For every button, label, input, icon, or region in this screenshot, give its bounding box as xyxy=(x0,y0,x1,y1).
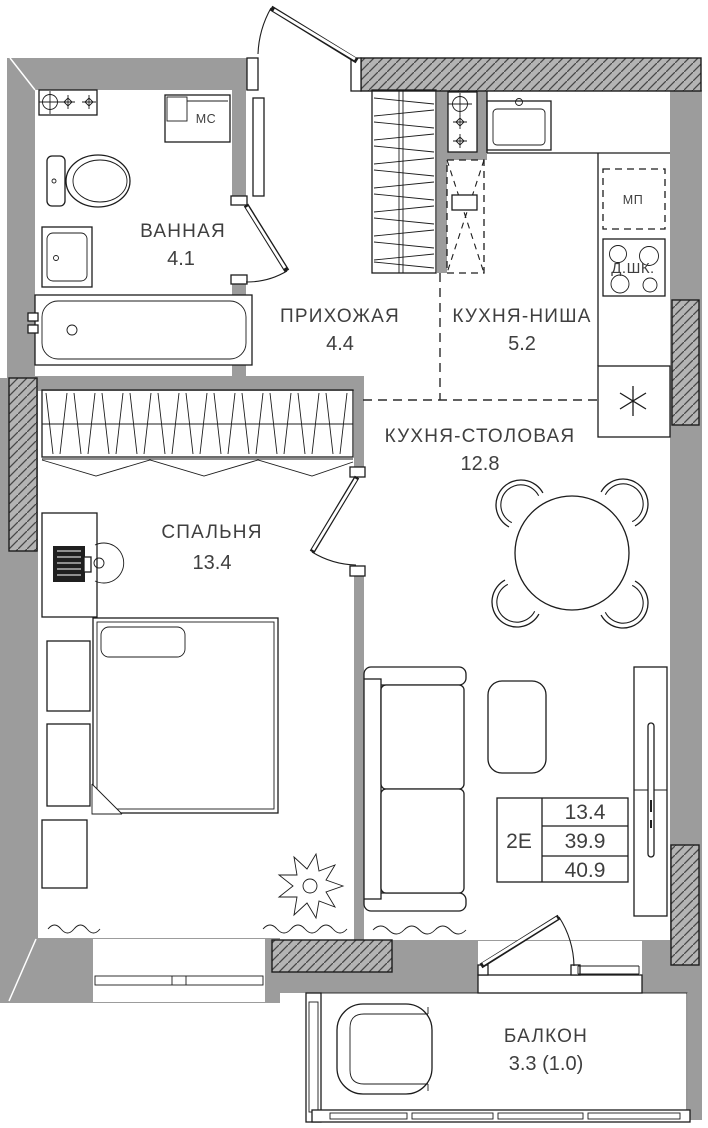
kitchen-niche-label: КУХНЯ-НИША xyxy=(452,306,591,327)
floor-plan: 2Е 13.4 39.9 40.9 ВАННАЯ 4.1 ПРИХОЖАЯ 4 xyxy=(0,0,708,1128)
bedroom-area-value: 13.4 xyxy=(565,801,606,824)
plant xyxy=(279,854,343,918)
wardrobe xyxy=(42,390,353,476)
balcony-area: 3.3 (1.0) xyxy=(509,1053,583,1075)
tv xyxy=(648,723,654,857)
balcony-label: БАЛКОН xyxy=(504,1026,588,1047)
dining-table xyxy=(482,469,659,639)
vent-duct xyxy=(447,160,484,273)
washing-machine-label: МС xyxy=(196,112,216,126)
curtain-squiggle xyxy=(48,925,100,933)
area-without-balcony-value: 39.9 xyxy=(565,830,606,853)
nightstand xyxy=(47,641,90,711)
kitchen-niche-area: 5.2 xyxy=(508,333,536,355)
spec-table: 2Е 13.4 39.9 40.9 xyxy=(497,798,628,882)
balcony xyxy=(306,993,690,1122)
kitchen-dining-label: КУХНЯ-СТОЛОВАЯ xyxy=(385,426,576,447)
balcony-door xyxy=(478,917,642,993)
total-area-value: 40.9 xyxy=(565,859,606,882)
kitchen-riser-icon xyxy=(448,92,477,152)
kitchen-sink xyxy=(487,99,551,151)
desk xyxy=(42,513,97,617)
apartment-type: 2Е xyxy=(506,830,532,853)
curtain-squiggle xyxy=(263,925,347,933)
bedroom-label: СПАЛЬНЯ xyxy=(161,522,262,543)
living-room: 2Е 13.4 39.9 40.9 xyxy=(364,469,667,934)
hall-jamb-panel xyxy=(253,98,264,196)
plumbing-riser-icon xyxy=(39,90,97,115)
floor-plan-drawing: 2Е 13.4 39.9 40.9 ВАННАЯ 4.1 ПРИХОЖАЯ 4 xyxy=(0,0,708,1128)
hallway-label: ПРИХОЖАЯ xyxy=(280,306,400,327)
tv-console xyxy=(634,667,667,916)
balcony-glazing xyxy=(306,993,690,1122)
entrance-door xyxy=(258,8,357,61)
oven-label: Д.ШК. xyxy=(611,260,654,277)
bedroom-door xyxy=(312,477,357,565)
toilet xyxy=(47,155,130,207)
bathroom-sink xyxy=(42,227,92,287)
cabinet xyxy=(42,820,87,888)
coffee-table xyxy=(488,681,546,773)
zone-boundaries xyxy=(363,273,598,400)
kitchen-dining-area: 12.8 xyxy=(461,453,500,475)
desk-chair xyxy=(94,543,124,583)
bathroom-door xyxy=(246,205,287,282)
curtain-squiggle xyxy=(373,926,466,934)
sofa xyxy=(364,667,466,911)
armchair xyxy=(337,1004,432,1094)
bathroom-label: ВАННАЯ xyxy=(140,221,226,242)
bedroom-window xyxy=(93,939,265,1002)
nightstand xyxy=(47,724,90,806)
bedroom xyxy=(42,390,353,933)
bathroom-area: 4.1 xyxy=(167,248,195,270)
bedroom-area: 13.4 xyxy=(193,552,232,574)
hallway-area: 4.4 xyxy=(326,333,354,355)
bathtub xyxy=(28,295,252,365)
hallway-closet xyxy=(372,90,436,273)
microwave-label: МП xyxy=(623,193,643,207)
bed xyxy=(92,618,278,814)
